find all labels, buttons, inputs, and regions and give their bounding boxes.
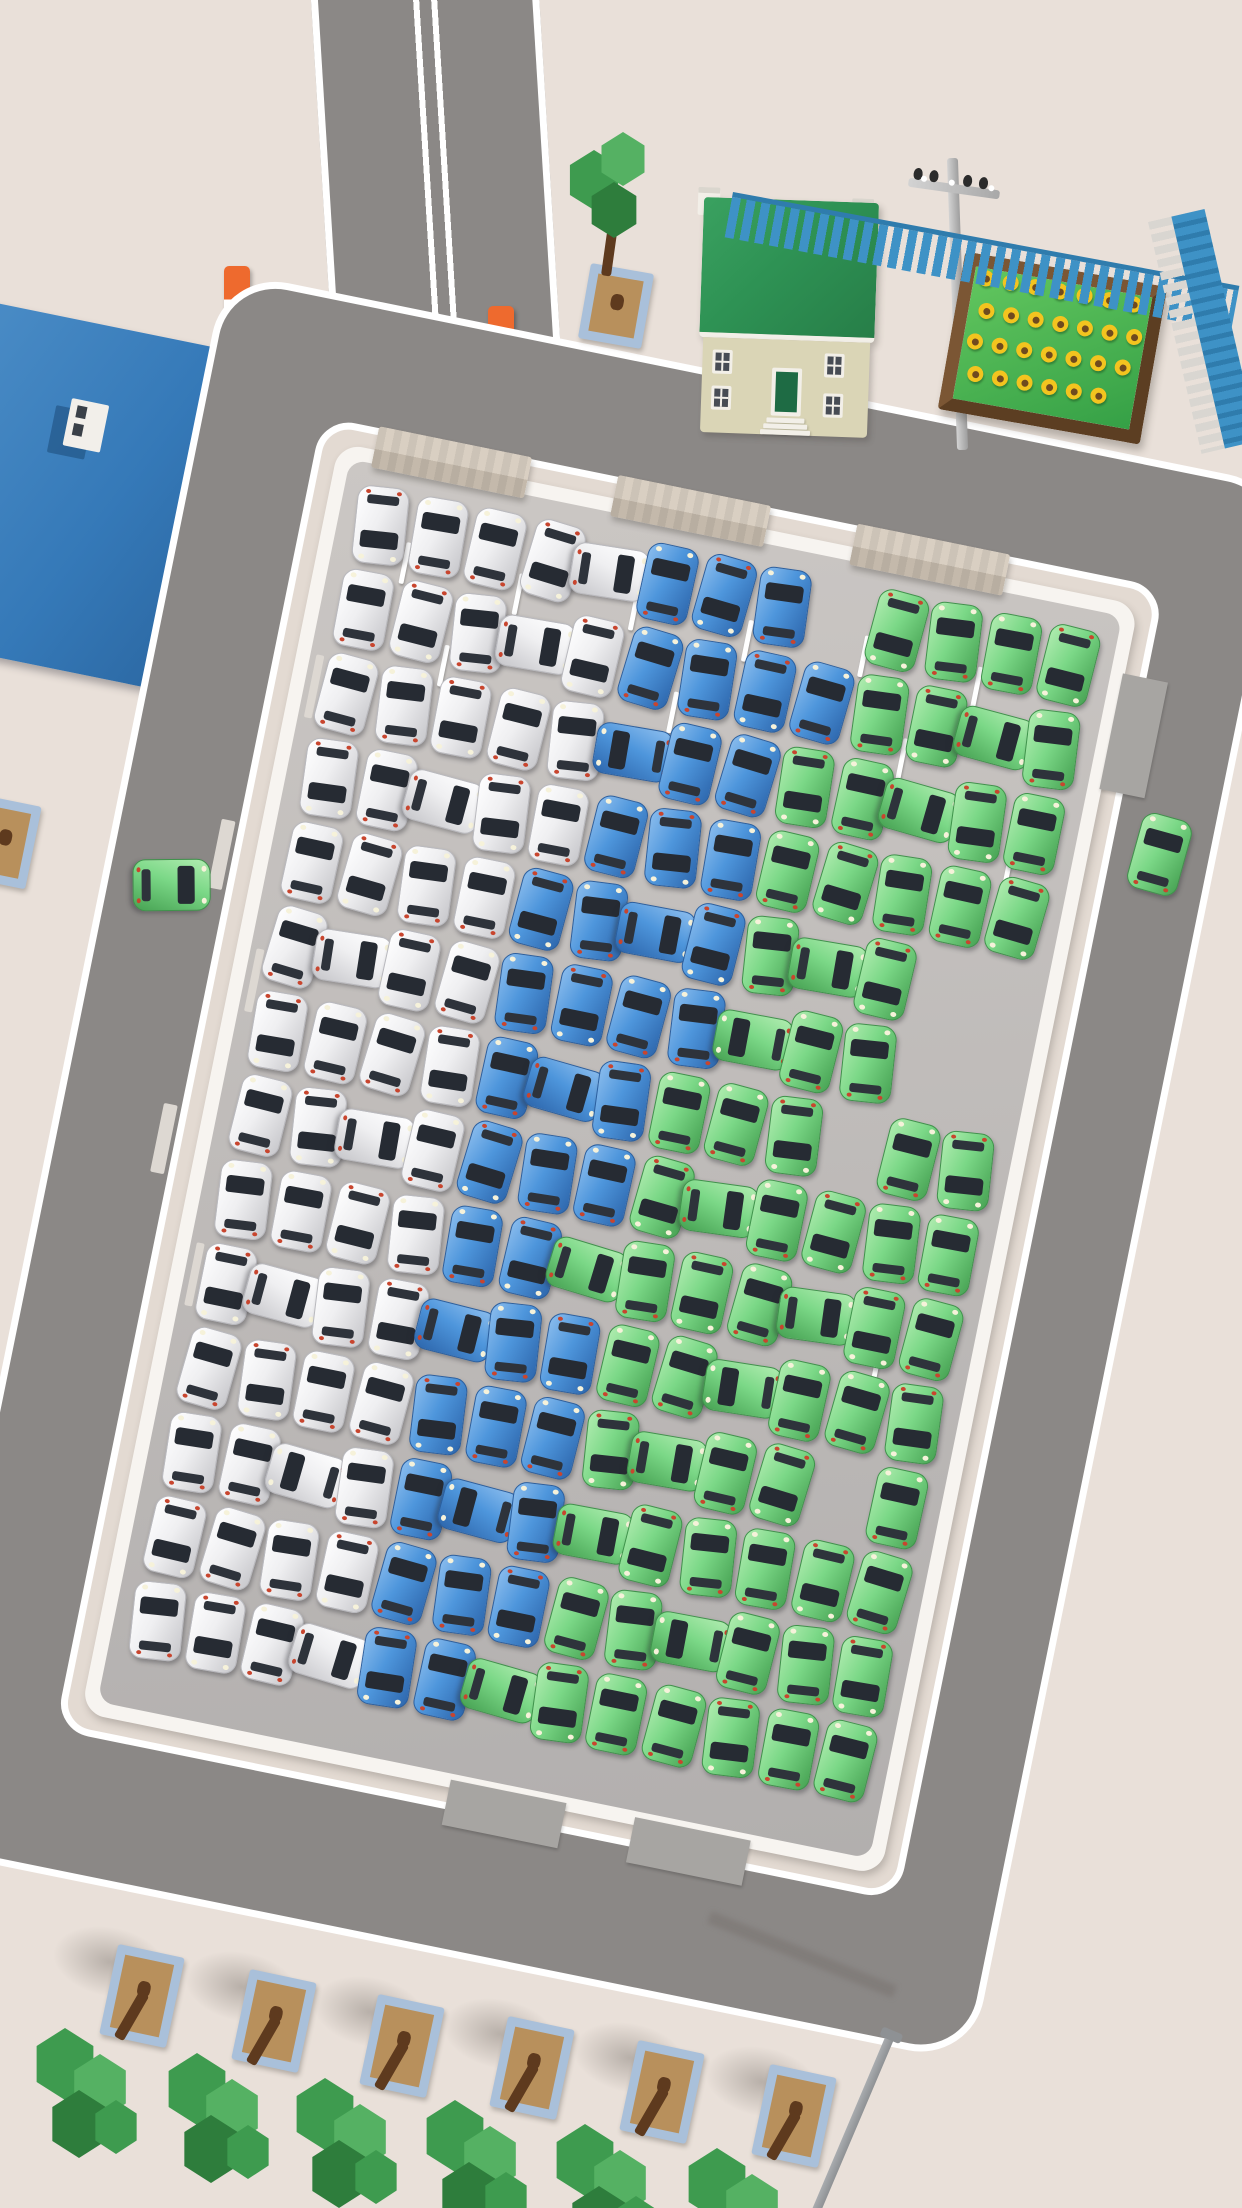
car-light bbox=[182, 1393, 188, 1398]
car-light bbox=[319, 1179, 326, 1185]
car-rear-window bbox=[751, 975, 784, 987]
car-rear-window bbox=[762, 626, 795, 639]
pole-insulator bbox=[948, 179, 955, 186]
car-windshield bbox=[506, 1259, 547, 1284]
car-light bbox=[998, 616, 1005, 622]
car-light bbox=[381, 734, 386, 739]
car-light bbox=[265, 994, 271, 999]
car-light bbox=[755, 919, 761, 925]
car-green[interactable] bbox=[946, 780, 1008, 864]
car-light bbox=[824, 1194, 830, 1199]
car-rear-window bbox=[859, 733, 892, 746]
car-light bbox=[245, 1252, 251, 1257]
car-rear-window bbox=[1136, 870, 1169, 887]
car-light bbox=[444, 853, 451, 859]
car-light bbox=[732, 1329, 738, 1334]
car-rear-window bbox=[1012, 851, 1045, 866]
car-light bbox=[252, 1232, 257, 1237]
car-light bbox=[463, 1694, 468, 1700]
car-light bbox=[350, 572, 357, 578]
car-rear-window bbox=[824, 1199, 857, 1216]
car-rear-window bbox=[203, 1600, 236, 1614]
car-windshield bbox=[244, 1383, 284, 1405]
car-light bbox=[512, 1111, 518, 1116]
car-light bbox=[224, 1491, 230, 1496]
car-rear-window bbox=[485, 1095, 518, 1111]
car-windshield bbox=[599, 810, 640, 836]
car-windshield bbox=[622, 990, 663, 1016]
car-blue[interactable] bbox=[408, 1373, 469, 1457]
car-white[interactable] bbox=[373, 664, 434, 748]
car-light bbox=[878, 1382, 885, 1388]
car-light bbox=[726, 1086, 733, 1092]
car-light bbox=[201, 1310, 208, 1316]
car-light bbox=[665, 1229, 672, 1235]
car-light bbox=[520, 1220, 526, 1225]
car-white[interactable] bbox=[213, 1158, 274, 1242]
car-light bbox=[336, 655, 343, 661]
car-windshield bbox=[652, 852, 692, 873]
car-rear-window bbox=[494, 1361, 527, 1373]
car-rear-window bbox=[396, 1254, 429, 1266]
car-light bbox=[424, 499, 431, 505]
car-blue[interactable] bbox=[493, 951, 555, 1035]
car-light bbox=[190, 1659, 197, 1665]
car-white[interactable] bbox=[310, 1265, 371, 1349]
car-light bbox=[327, 1158, 333, 1164]
car-rear-window bbox=[422, 1696, 455, 1712]
car-light bbox=[596, 1588, 603, 1594]
pole-insulator bbox=[921, 175, 928, 182]
car-light bbox=[336, 1534, 342, 1539]
car-light bbox=[897, 1121, 904, 1127]
car-windshield bbox=[759, 1194, 800, 1218]
car-light bbox=[405, 1635, 411, 1640]
car-light bbox=[411, 583, 417, 588]
car-light bbox=[558, 1316, 564, 1321]
car-light bbox=[837, 825, 843, 830]
car-blue[interactable] bbox=[430, 1553, 492, 1637]
car-rear-window bbox=[398, 937, 431, 953]
car-light bbox=[725, 647, 732, 653]
car-blue[interactable] bbox=[590, 1059, 652, 1143]
car-light bbox=[377, 1608, 383, 1613]
car-blue[interactable] bbox=[515, 1131, 578, 1216]
car-light bbox=[1163, 888, 1169, 893]
car-rear-window bbox=[849, 1083, 882, 1095]
car-green[interactable] bbox=[861, 1202, 922, 1286]
car-windshield bbox=[861, 689, 901, 711]
car-light bbox=[579, 1652, 585, 1657]
car-light bbox=[655, 545, 662, 551]
car-windshield bbox=[427, 1069, 467, 1092]
car-light bbox=[247, 1670, 253, 1675]
car-light bbox=[522, 1374, 527, 1379]
car-light bbox=[1149, 816, 1156, 822]
car-light bbox=[483, 1389, 490, 1395]
car-rear-window bbox=[736, 1320, 769, 1337]
sunflower bbox=[991, 369, 1010, 388]
car-windshield bbox=[657, 1699, 698, 1725]
car-windshield bbox=[517, 910, 558, 936]
car-light bbox=[877, 1096, 882, 1101]
car-rear-window bbox=[703, 1490, 736, 1506]
car-rear-window bbox=[812, 1548, 845, 1564]
car-blue[interactable] bbox=[643, 807, 703, 890]
car-light bbox=[373, 1345, 380, 1351]
car-windshield bbox=[450, 954, 491, 981]
car-rear-window bbox=[1007, 885, 1040, 902]
car-light bbox=[963, 785, 969, 790]
car-rear-window bbox=[481, 1129, 514, 1147]
sunflower bbox=[1089, 354, 1108, 373]
car-light bbox=[975, 1202, 981, 1208]
car-light bbox=[985, 854, 992, 860]
car-windshield bbox=[845, 772, 886, 797]
car-light bbox=[374, 1630, 380, 1635]
car-light bbox=[550, 1644, 556, 1649]
car-green[interactable] bbox=[883, 1382, 945, 1466]
car-light bbox=[713, 995, 720, 1001]
car-light bbox=[601, 728, 607, 735]
car-green[interactable] bbox=[678, 1516, 738, 1599]
car-light bbox=[452, 1119, 459, 1125]
car-light bbox=[253, 1057, 260, 1063]
car-light bbox=[621, 1309, 627, 1314]
car-windshield bbox=[717, 1367, 740, 1407]
car-rear-window bbox=[495, 745, 528, 762]
car-light bbox=[752, 1247, 758, 1252]
car-light bbox=[908, 1210, 915, 1216]
car-windshield bbox=[873, 1219, 913, 1241]
car-light bbox=[1059, 627, 1065, 632]
car-rear-window bbox=[582, 623, 615, 639]
car-windshield bbox=[192, 1341, 233, 1368]
car-light bbox=[1010, 861, 1016, 866]
car-light bbox=[754, 1508, 761, 1515]
car-windshield bbox=[151, 1538, 192, 1563]
bird bbox=[978, 177, 989, 190]
car-light bbox=[1029, 778, 1034, 783]
car-windshield bbox=[678, 1295, 719, 1320]
car-light bbox=[598, 1128, 605, 1134]
car-light bbox=[215, 1246, 221, 1251]
car-rear-window bbox=[798, 719, 831, 736]
car-rear-window bbox=[755, 1238, 788, 1253]
car-light bbox=[362, 817, 368, 822]
car-light bbox=[846, 1092, 851, 1097]
car-light bbox=[781, 814, 788, 820]
car-rear-window bbox=[554, 1246, 572, 1279]
car-light bbox=[641, 1507, 647, 1512]
car-light bbox=[785, 1077, 791, 1082]
car-light bbox=[371, 1364, 378, 1370]
car-windshield bbox=[232, 1438, 273, 1463]
car-green[interactable] bbox=[936, 1129, 996, 1212]
car-rear-window bbox=[657, 1130, 690, 1145]
car-light bbox=[307, 1527, 314, 1533]
car-rear-window bbox=[462, 915, 495, 930]
car-light bbox=[815, 1085, 821, 1090]
car-rear-window bbox=[316, 746, 349, 759]
car-light bbox=[285, 908, 292, 915]
car-light bbox=[872, 1535, 878, 1540]
car-light bbox=[870, 1553, 877, 1560]
car-light bbox=[311, 1353, 318, 1359]
car-rear-window bbox=[668, 781, 701, 797]
car-light bbox=[395, 1088, 401, 1093]
car-light bbox=[780, 1275, 787, 1281]
car-light bbox=[414, 565, 420, 570]
car-light bbox=[478, 841, 485, 847]
car-white[interactable] bbox=[470, 771, 531, 855]
car-light bbox=[479, 685, 485, 690]
car-light bbox=[595, 759, 601, 766]
car-windshield bbox=[994, 628, 1034, 652]
sunflower bbox=[1100, 323, 1119, 342]
car-light bbox=[323, 1004, 330, 1010]
car-light bbox=[514, 1394, 521, 1400]
car-light bbox=[449, 1712, 455, 1717]
car-green[interactable] bbox=[775, 1623, 835, 1706]
car-light bbox=[847, 916, 854, 923]
car-light bbox=[463, 1648, 470, 1654]
car-light bbox=[935, 1373, 941, 1378]
car-white[interactable] bbox=[298, 736, 360, 820]
car-light bbox=[910, 928, 916, 933]
car-light bbox=[234, 1141, 240, 1146]
car-light bbox=[234, 1582, 240, 1587]
car-light bbox=[827, 1613, 834, 1619]
car-rear-window bbox=[579, 940, 612, 953]
car-light bbox=[634, 1221, 641, 1227]
car-light bbox=[164, 1499, 170, 1504]
car-light bbox=[178, 1415, 185, 1421]
car-light bbox=[962, 674, 967, 679]
car-light bbox=[254, 1497, 260, 1502]
car-windshield bbox=[805, 676, 846, 703]
car-light bbox=[653, 1158, 659, 1163]
car-green[interactable] bbox=[763, 1094, 824, 1178]
road-car-green[interactable] bbox=[132, 859, 210, 912]
car-light bbox=[232, 1316, 239, 1322]
car-light bbox=[705, 1061, 710, 1066]
car-light bbox=[859, 1004, 866, 1010]
car-light bbox=[754, 653, 760, 658]
car-light bbox=[901, 1387, 907, 1392]
car-light bbox=[462, 596, 468, 602]
car-windshield bbox=[355, 941, 378, 981]
car-white[interactable] bbox=[418, 1024, 481, 1109]
car-green[interactable] bbox=[838, 1022, 898, 1105]
car-windshield bbox=[174, 1427, 214, 1450]
car-windshield bbox=[891, 1132, 932, 1158]
car-green[interactable] bbox=[1021, 708, 1082, 792]
house-window bbox=[824, 353, 845, 378]
car-rear-window bbox=[437, 1034, 470, 1048]
car-rear-window bbox=[862, 1295, 895, 1310]
car-light bbox=[817, 906, 824, 913]
car-rear-window bbox=[296, 1632, 314, 1665]
car-light bbox=[749, 1266, 756, 1272]
car-light bbox=[693, 642, 700, 648]
sunflower bbox=[1113, 358, 1132, 377]
car-light bbox=[807, 1717, 814, 1723]
car-light bbox=[716, 557, 722, 562]
car-light bbox=[738, 737, 745, 744]
car-light bbox=[717, 1701, 722, 1706]
car-rear-window bbox=[578, 552, 592, 585]
car-white[interactable] bbox=[333, 1445, 395, 1529]
car-rear-window bbox=[279, 1229, 312, 1244]
car-light bbox=[881, 768, 888, 774]
car-light bbox=[572, 580, 577, 586]
car-green[interactable] bbox=[923, 600, 984, 684]
sunflower bbox=[990, 337, 1009, 356]
car-light bbox=[382, 578, 389, 584]
car-light bbox=[565, 858, 571, 863]
car-light bbox=[457, 943, 464, 949]
car-light bbox=[715, 1046, 721, 1053]
car-windshield bbox=[1143, 827, 1184, 854]
car-windshield bbox=[279, 1451, 306, 1492]
car-light bbox=[724, 1524, 730, 1530]
car-light bbox=[618, 1593, 625, 1599]
car-windshield bbox=[743, 1277, 784, 1304]
car-light bbox=[721, 1015, 727, 1022]
car-light bbox=[592, 707, 598, 713]
car-light bbox=[455, 1382, 460, 1387]
car-rear-window bbox=[556, 760, 589, 772]
car-windshield bbox=[565, 1073, 592, 1114]
car-light bbox=[498, 652, 503, 658]
car-light bbox=[806, 1256, 813, 1262]
pole-insulator bbox=[988, 185, 995, 192]
car-light bbox=[296, 999, 302, 1004]
car-light bbox=[608, 1064, 614, 1069]
car-light bbox=[888, 857, 895, 863]
car-light bbox=[394, 1699, 401, 1705]
car-blue[interactable] bbox=[751, 565, 813, 649]
car-windshield bbox=[820, 1298, 842, 1338]
car-light bbox=[459, 924, 465, 929]
car-light bbox=[467, 749, 474, 755]
car-light bbox=[730, 1506, 736, 1511]
car-rear-window bbox=[687, 1189, 700, 1222]
car-blue[interactable] bbox=[483, 1301, 543, 1384]
car-rear-window bbox=[715, 562, 748, 579]
car-light bbox=[412, 738, 417, 743]
car-light bbox=[305, 805, 312, 811]
car-light bbox=[1029, 622, 1036, 628]
car-rear-window bbox=[836, 850, 869, 868]
car-light bbox=[715, 712, 721, 717]
car-rear-window bbox=[365, 807, 398, 822]
car-windshield bbox=[588, 1253, 615, 1294]
car-light bbox=[457, 1098, 464, 1104]
car-rear-window bbox=[689, 1577, 722, 1589]
car-green[interactable] bbox=[848, 672, 910, 756]
car-white[interactable] bbox=[351, 484, 411, 567]
car-light bbox=[707, 1325, 714, 1331]
car-windshield bbox=[727, 1017, 751, 1057]
car-light bbox=[471, 859, 478, 865]
car-rear-window bbox=[773, 1451, 806, 1469]
car-white[interactable] bbox=[235, 1338, 297, 1422]
car-light bbox=[372, 907, 379, 913]
car-green[interactable] bbox=[613, 1239, 676, 1324]
car-light bbox=[932, 671, 937, 676]
car-white[interactable] bbox=[395, 844, 457, 928]
car-light bbox=[630, 1244, 637, 1250]
car-light bbox=[655, 1578, 662, 1584]
car-light bbox=[658, 812, 663, 817]
house-window bbox=[823, 393, 844, 418]
car-rear-window bbox=[624, 1300, 657, 1314]
car-rear-window bbox=[595, 1732, 628, 1747]
car-white[interactable] bbox=[385, 1193, 445, 1276]
car-light bbox=[767, 570, 774, 576]
car-light bbox=[848, 1354, 855, 1360]
car-light bbox=[843, 673, 850, 679]
car-light bbox=[1041, 690, 1048, 696]
car-rear-window bbox=[792, 755, 825, 769]
car-light bbox=[199, 1329, 206, 1335]
car-light bbox=[427, 1532, 433, 1537]
car-light bbox=[169, 1480, 175, 1485]
car-light bbox=[618, 939, 623, 945]
car-light bbox=[237, 1426, 244, 1432]
car-light bbox=[425, 654, 432, 660]
car-rear-window bbox=[410, 588, 443, 605]
car-light bbox=[392, 823, 398, 828]
car-green[interactable] bbox=[528, 1660, 590, 1744]
car-rear-window bbox=[718, 1706, 751, 1719]
car-light bbox=[381, 1455, 388, 1461]
car-light bbox=[545, 942, 552, 948]
car-light bbox=[470, 575, 476, 580]
car-light bbox=[386, 1281, 392, 1286]
car-light bbox=[554, 770, 559, 775]
car-windshield bbox=[345, 875, 386, 902]
car-light bbox=[472, 1454, 478, 1459]
house-door bbox=[771, 367, 803, 416]
car-windshield bbox=[306, 1365, 347, 1389]
car-windshield bbox=[376, 1027, 417, 1054]
car-light bbox=[774, 1427, 780, 1432]
car-green[interactable] bbox=[700, 1696, 761, 1780]
car-light bbox=[784, 1294, 789, 1300]
car-rear-window bbox=[503, 624, 517, 657]
car-light bbox=[605, 798, 612, 804]
car-light bbox=[707, 887, 713, 892]
car-windshield bbox=[465, 1162, 506, 1189]
car-light bbox=[394, 646, 401, 652]
car-white[interactable] bbox=[128, 1579, 188, 1662]
car-windshield bbox=[913, 728, 954, 752]
car-light bbox=[300, 824, 307, 830]
car-light bbox=[341, 898, 348, 904]
car-light bbox=[404, 914, 410, 919]
car-light bbox=[407, 1176, 413, 1181]
car-light bbox=[630, 1468, 635, 1474]
car-light bbox=[822, 755, 828, 760]
car-rear-window bbox=[473, 566, 506, 582]
car-light bbox=[759, 635, 765, 640]
car-windshield bbox=[244, 1088, 285, 1114]
car-rear-window bbox=[609, 1069, 642, 1082]
car-windshield bbox=[415, 1124, 456, 1149]
